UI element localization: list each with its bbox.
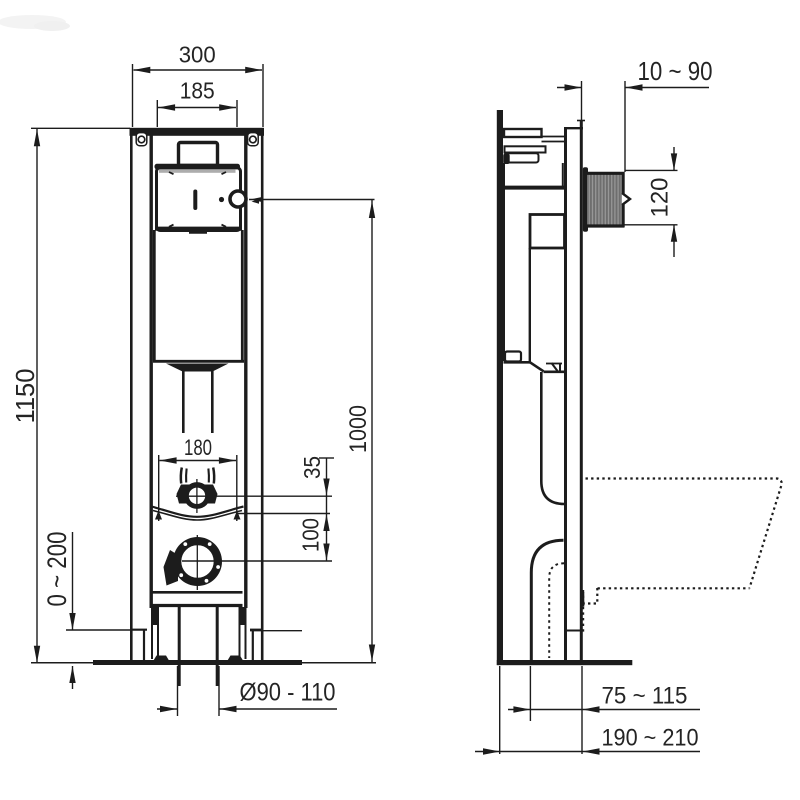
svg-text:0 ~ 200: 0 ~ 200 <box>42 532 72 607</box>
svg-text:1150: 1150 <box>10 369 40 424</box>
svg-text:75 ~ 115: 75 ~ 115 <box>602 682 688 709</box>
svg-text:10 ~ 90: 10 ~ 90 <box>638 58 713 86</box>
svg-text:180: 180 <box>184 435 212 460</box>
svg-text:Ø90 - 110: Ø90 - 110 <box>240 679 336 707</box>
svg-text:190 ~ 210: 190 ~ 210 <box>602 725 699 752</box>
svg-text:100: 100 <box>298 518 324 552</box>
svg-text:35: 35 <box>299 456 325 479</box>
svg-text:185: 185 <box>180 78 215 104</box>
svg-text:1000: 1000 <box>345 405 372 453</box>
svg-text:300: 300 <box>179 42 216 68</box>
svg-text:120: 120 <box>647 178 674 218</box>
